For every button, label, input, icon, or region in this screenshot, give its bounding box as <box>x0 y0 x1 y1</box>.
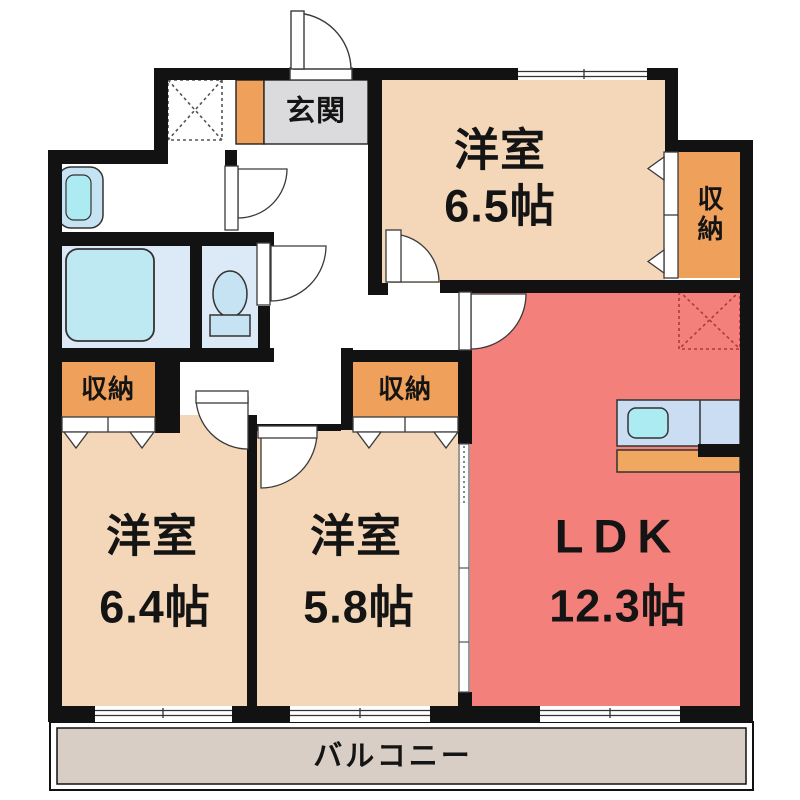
room-5-8-area: 5.8帖 <box>303 585 415 630</box>
closet-6-5-label: 収納 <box>696 185 722 245</box>
bathtub-icon <box>66 249 154 341</box>
closet-6-4-label: 収納 <box>81 376 135 402</box>
entrance-label: 玄関 <box>286 98 346 127</box>
room-6-5-label: 洋室 <box>454 128 546 173</box>
floor-plan: 玄関 洋室 6.5帖 収納 収納 収納 洋室 6.4帖 洋室 5.8帖 LDK … <box>0 0 800 800</box>
washbasin-icon <box>58 167 103 228</box>
ldk-floor <box>470 293 740 706</box>
room-5-8-label: 洋室 <box>310 514 402 559</box>
door-arc-washroom <box>238 169 287 218</box>
entrance-door-icon <box>290 11 352 80</box>
door-leaf-room-6-4 <box>196 391 248 403</box>
kitchen-counter-icon <box>617 400 743 472</box>
pipe-space-icon <box>168 80 222 140</box>
room-6-5-area: 6.5帖 <box>444 184 556 229</box>
ldk-area: 12.3帖 <box>549 584 687 629</box>
closet-5-8-label: 収納 <box>378 376 432 402</box>
room-6-4-area: 6.4帖 <box>99 585 211 630</box>
kitchen-sink-icon <box>628 408 668 438</box>
door-leaf-washroom <box>225 166 238 230</box>
balcony-label: バルコニー <box>313 743 472 772</box>
room-6-4-label: 洋室 <box>106 514 198 559</box>
door-leaf-room-6-5 <box>386 230 401 282</box>
ldk-label: LDK <box>555 513 682 560</box>
door-leaf-toilet <box>257 243 270 305</box>
toilet-icon <box>210 271 250 336</box>
door-leaf-ldk <box>459 292 471 350</box>
door-arc-toilet <box>271 246 326 301</box>
shoe-cabinet <box>236 80 264 144</box>
door-leaf-room-5-8 <box>258 426 317 438</box>
sliding-door-icon <box>459 444 469 692</box>
